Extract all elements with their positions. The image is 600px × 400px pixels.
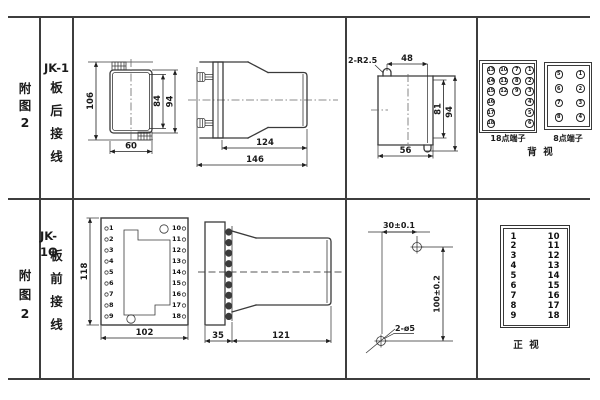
terminal-number: 6 (109, 278, 121, 289)
terminal-screw-top (197, 73, 213, 82)
dim-label-146: 146 (246, 155, 264, 165)
wiring-char: 板 (50, 244, 63, 267)
terminal-number: 2 (511, 242, 517, 251)
terminal-number: 6 (511, 282, 517, 291)
terminal-number: 3 (525, 87, 534, 96)
drawing-sheet: 附 图 2 JK-1 板 后 接 线 (0, 0, 600, 400)
figure-char: 2 (21, 304, 30, 323)
terminal-number: 1 (109, 223, 121, 234)
terminal-screws-column (226, 228, 233, 320)
terminal-number: 14 (165, 267, 181, 278)
terminal-number: 8 (109, 300, 121, 311)
terminal-number: 6 (555, 84, 564, 93)
terminal-number: 2 (109, 234, 121, 245)
terminal-number: 8 (512, 77, 521, 86)
figure-char: 附 (19, 266, 32, 285)
figure-char: 图 (19, 97, 32, 114)
dim-label-56: 56 (400, 146, 412, 156)
left-terminal-circles (105, 227, 108, 318)
model-label-row2: JK-1Q 板 前 接 线 (40, 228, 73, 336)
terminal-number: 4 (109, 256, 121, 267)
terminal-number: 17 (487, 108, 496, 117)
terminal-block-8: 51627384 (544, 62, 592, 130)
terminal-number: 4 (525, 98, 534, 107)
model-label-row1: JK-1 板 后 接 线 (41, 60, 72, 168)
terminal-number: 2 (576, 84, 585, 93)
dim-label-121: 121 (272, 331, 290, 341)
terminal-number: 6 (525, 119, 534, 128)
terminal-number: 17 (548, 302, 560, 311)
terminal-number: 3 (576, 99, 585, 108)
wiring-char: 接 (50, 122, 63, 145)
terminal-number: 9 (512, 87, 521, 96)
terminal-number: 18 (548, 312, 560, 321)
dim-label-84: 84 (153, 95, 163, 107)
terminal-number: 11 (499, 77, 508, 86)
terminal-block-18-label: 18点端子 (479, 133, 537, 144)
terminal-number: 16 (548, 292, 560, 301)
terminal-screw-bottom (197, 119, 213, 128)
terminal-number: 14 (487, 77, 496, 86)
side-view-front-wiring-drawing: 35 121 (198, 214, 343, 349)
terminal-number: 11 (548, 242, 560, 251)
dim-label-48: 48 (401, 54, 413, 64)
terminal-number: 15 (165, 278, 181, 289)
dim-label-94: 94 (166, 96, 176, 108)
dim-label-124: 124 (256, 138, 274, 148)
right-terminal-circles (182, 227, 185, 318)
terminal-grid-18: 131071141182151293164175186 (482, 63, 535, 132)
radius-note-label: 2-R2.5 (348, 56, 378, 65)
rear-view-label: 背 视 (497, 144, 583, 158)
terminal-number: 4 (511, 262, 517, 271)
terminal-number: 14 (548, 272, 560, 281)
side-view-rear-wiring-drawing: 124 146 (188, 45, 340, 175)
terminal-number: 15 (548, 282, 560, 291)
terminal-table-right-column: 101112131415161718 (548, 233, 560, 321)
terminal-number: 17 (165, 300, 181, 311)
terminal-number: 12 (548, 252, 560, 261)
dim-label-102: 102 (136, 328, 154, 338)
terminal-table-inner: 123456789 101112131415161718 (503, 228, 568, 326)
terminal-number: 13 (548, 262, 560, 271)
terminal-number: 9 (511, 312, 517, 321)
wiring-char: 线 (50, 313, 63, 336)
mounting-hole-bottom (127, 315, 135, 323)
figure-label-row2: 附 图 2 (12, 266, 38, 323)
terminal-number: 5 (511, 272, 517, 281)
holes-note-label: 2-ø5 (395, 324, 415, 333)
wiring-char: 前 (50, 267, 63, 290)
terminal-number: 7 (109, 289, 121, 300)
figure-char: 2 (21, 114, 30, 131)
front-view-label: 正 视 (489, 337, 563, 351)
model-name: JK-1Q (40, 228, 73, 244)
drilling-plan-drawing: 30±0.1 100±0.2 2-ø5 (356, 214, 464, 359)
dim-label-35: 35 (212, 331, 224, 341)
terminal-number: 18 (487, 119, 496, 128)
front-view-left-terminal-numbers: 123456789 (109, 223, 121, 322)
terminal-number: 16 (165, 289, 181, 300)
figure-char: 附 (19, 80, 32, 97)
table-border-top (8, 16, 590, 18)
model-name: JK-1 (44, 60, 69, 76)
terminal-number: 5 (555, 70, 564, 79)
figure-char: 图 (19, 285, 32, 304)
table-border-middle (8, 198, 590, 200)
terminal-number: 13 (165, 256, 181, 267)
wiring-char: 线 (50, 145, 63, 168)
dim-label-106: 106 (86, 92, 96, 110)
terminal-number: 5 (525, 108, 534, 117)
terminal-table-left-column: 123456789 (511, 233, 517, 321)
terminal-number: 15 (487, 87, 496, 96)
terminal-number: 8 (555, 113, 564, 122)
terminal-number: 7 (511, 292, 517, 301)
figure-label-row1: 附 图 2 (12, 80, 38, 131)
front-view-right-terminal-numbers: 101112131415161718 (165, 223, 181, 322)
terminal-number: 10 (499, 66, 508, 75)
terminal-number: 10 (548, 233, 560, 242)
terminal-block-18: 131071141182151293164175186 (479, 60, 537, 133)
wiring-char: 后 (50, 99, 63, 122)
table-border-v4 (476, 16, 478, 380)
dim-label-81: 81 (434, 103, 444, 115)
terminal-number: 2 (525, 77, 534, 86)
dim-label-118: 118 (80, 263, 90, 281)
dim-label-60: 60 (125, 142, 137, 152)
terminal-table-front: 123456789 101112131415161718 (500, 225, 570, 328)
terminal-number: 3 (109, 245, 121, 256)
terminal-number: 10 (165, 223, 181, 234)
wiring-char: 接 (50, 290, 63, 313)
terminal-number: 11 (165, 234, 181, 245)
terminal-number: 1 (576, 70, 585, 79)
terminal-grid-8: 51627384 (547, 65, 590, 128)
terminal-number: 12 (499, 87, 508, 96)
table-border-bottom (8, 378, 590, 380)
terminal-number: 1 (525, 66, 534, 75)
dim-label-100: 100±0.2 (433, 275, 442, 313)
panel-cutout-drawing: 48 81 94 56 2-R2.5 (346, 50, 464, 164)
terminal-number: 5 (109, 267, 121, 278)
terminal-number: 13 (487, 66, 496, 75)
terminal-number: 7 (512, 66, 521, 75)
dim-label-30: 30±0.1 (383, 221, 415, 230)
terminal-number: 7 (555, 99, 564, 108)
rear-outline-drawing: 106 84 94 60 (83, 48, 191, 168)
terminal-number: 1 (511, 233, 517, 242)
wiring-char: 板 (50, 76, 63, 99)
terminal-number: 3 (511, 252, 517, 261)
terminal-number: 8 (511, 302, 517, 311)
terminal-number: 16 (487, 98, 496, 107)
terminal-number: 18 (165, 311, 181, 322)
terminal-number: 4 (576, 113, 585, 122)
dim-label-94b: 94 (445, 106, 455, 118)
terminal-number: 12 (165, 245, 181, 256)
terminal-number: 9 (109, 311, 121, 322)
mounting-screw-top (112, 62, 126, 70)
terminal-block-8-label: 8点端子 (542, 133, 594, 144)
